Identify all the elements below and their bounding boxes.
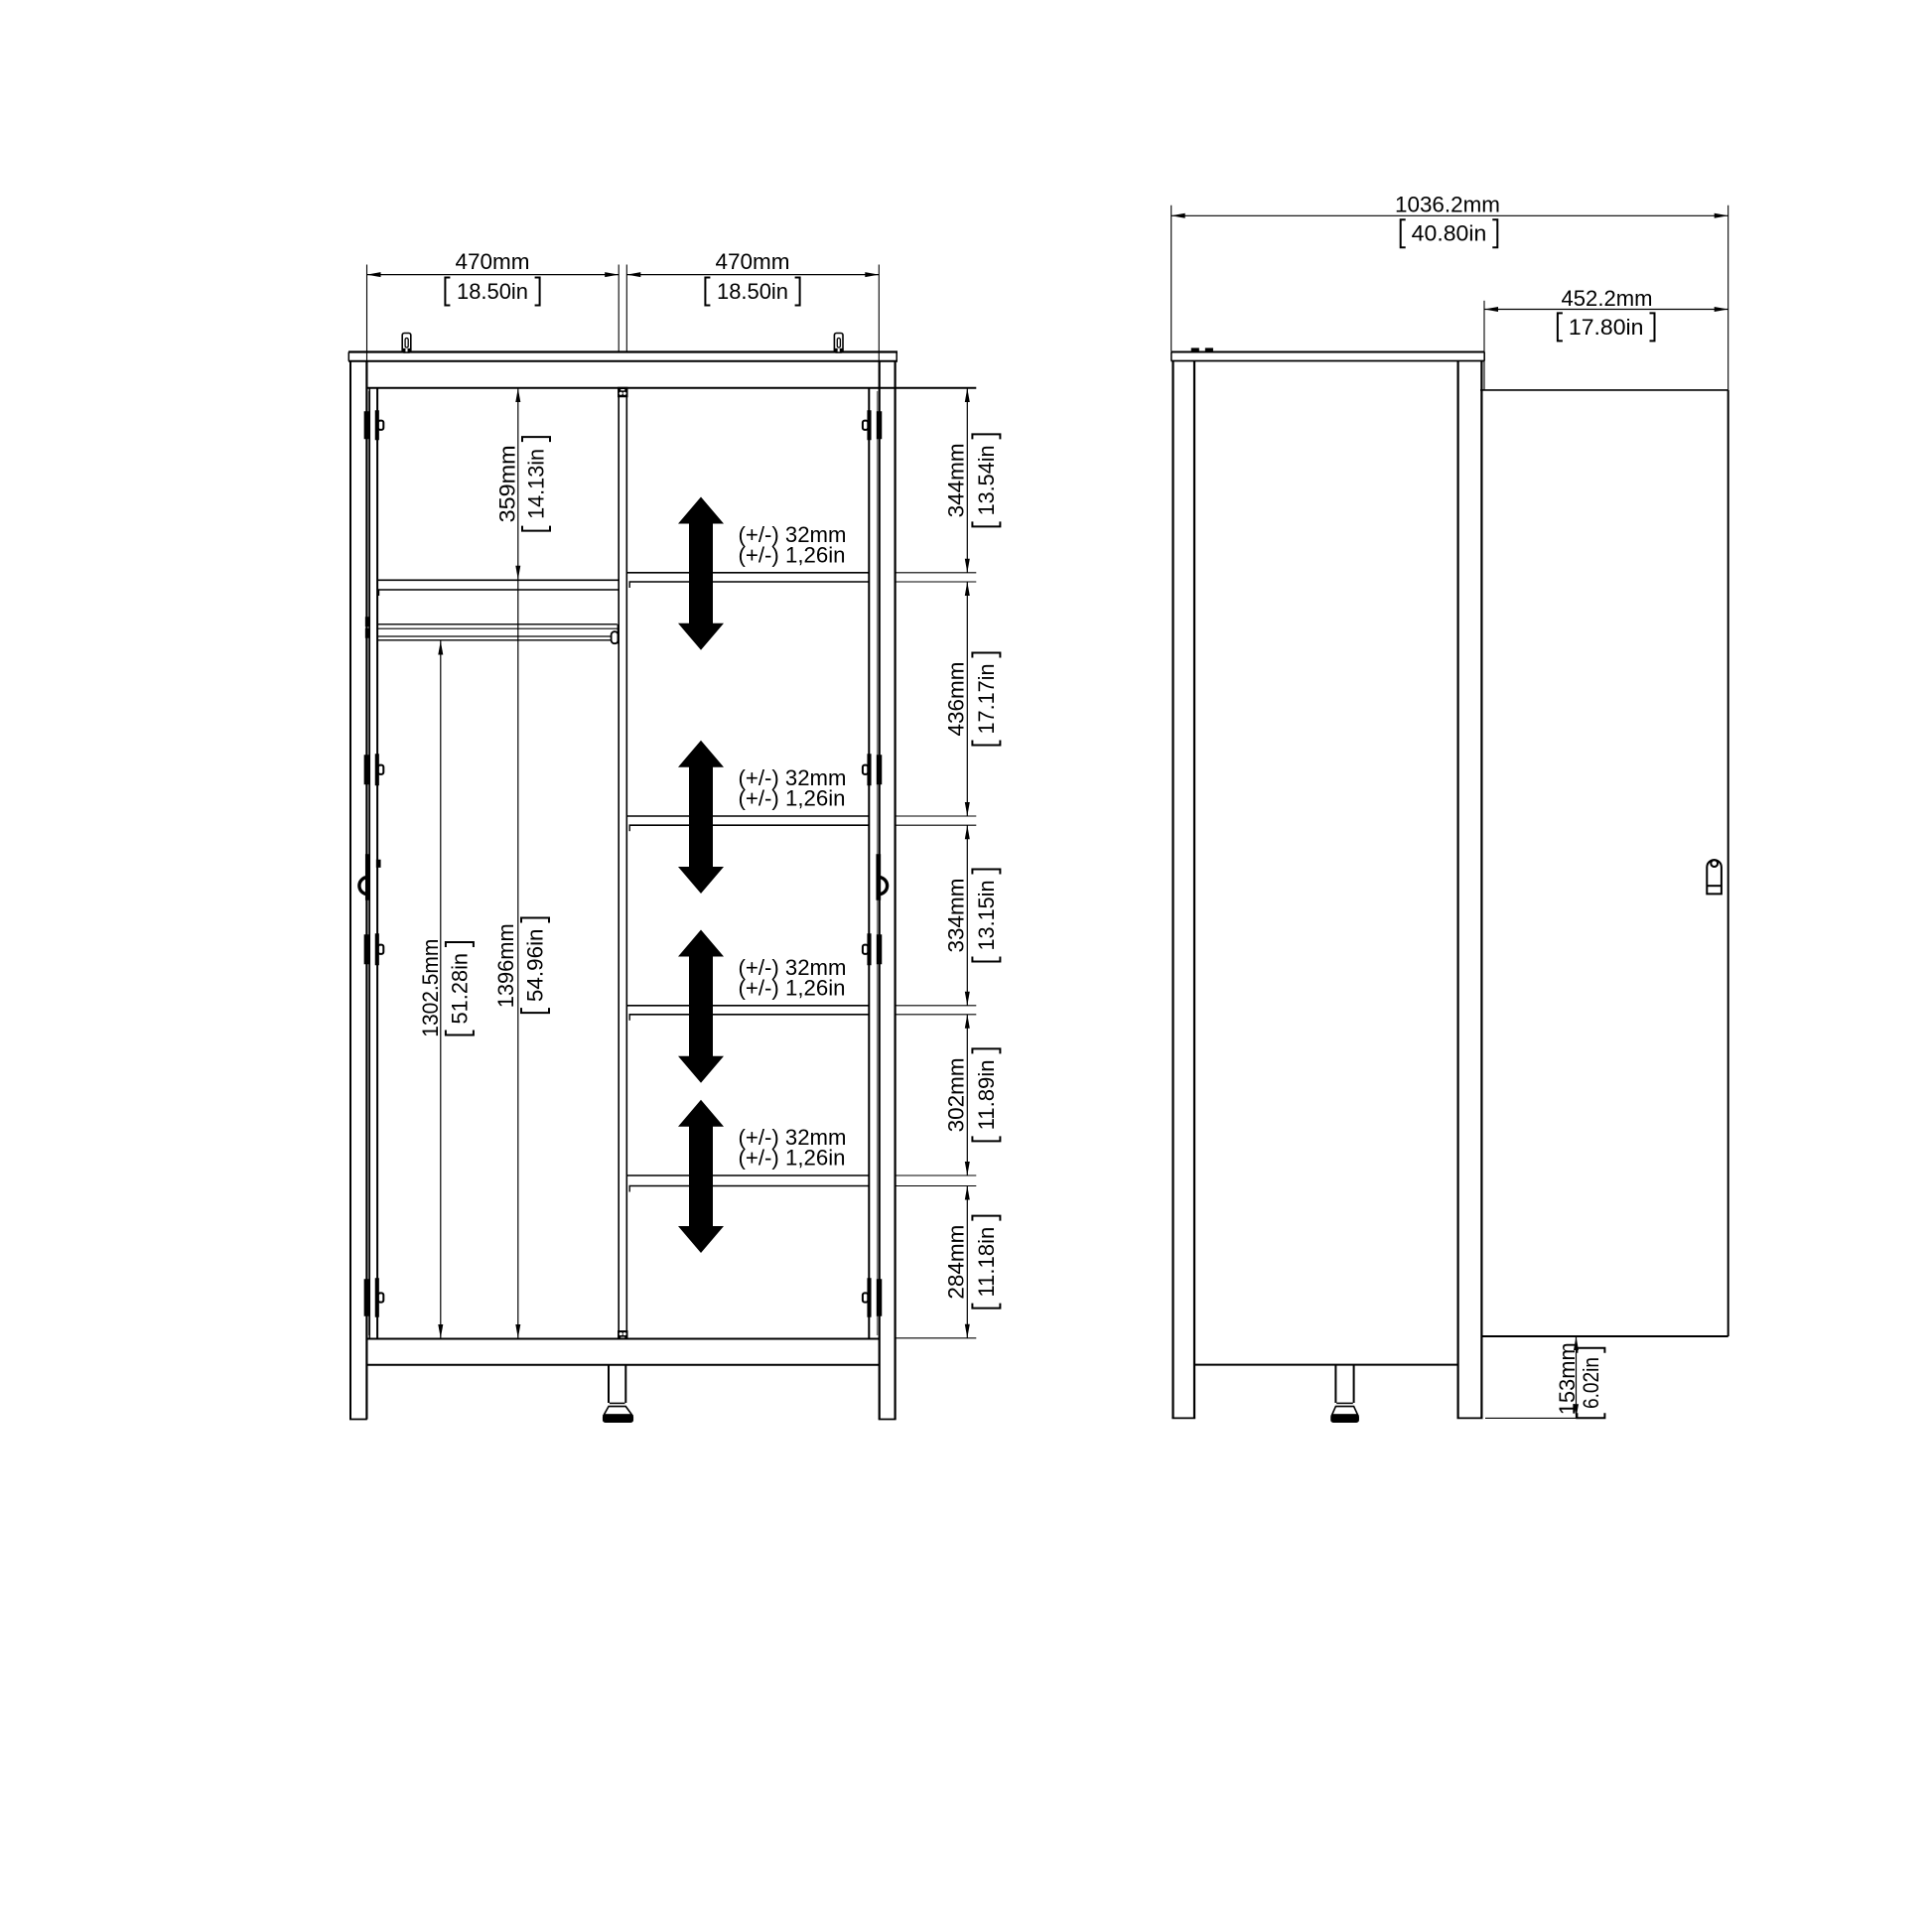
svg-text:13.54in: 13.54in — [974, 445, 999, 515]
svg-text:436mm: 436mm — [944, 662, 969, 737]
svg-text:11.18in: 11.18in — [974, 1227, 999, 1298]
svg-text:18.50in: 18.50in — [457, 279, 528, 304]
svg-text:284mm: 284mm — [944, 1225, 969, 1300]
svg-text:1036.2mm: 1036.2mm — [1395, 193, 1500, 217]
svg-text:17.17in: 17.17in — [974, 664, 999, 735]
svg-text:6.02in: 6.02in — [1579, 1357, 1603, 1409]
svg-text:51.28in: 51.28in — [447, 953, 472, 1024]
svg-text:344mm: 344mm — [944, 443, 969, 517]
svg-text:14.13in: 14.13in — [524, 449, 549, 519]
svg-text:11.89in: 11.89in — [974, 1059, 999, 1130]
svg-text:(+/-) 1,26in: (+/-) 1,26in — [739, 975, 846, 1000]
svg-text:452.2mm: 452.2mm — [1562, 286, 1653, 311]
svg-text:17.80in: 17.80in — [1569, 315, 1644, 340]
svg-text:470mm: 470mm — [456, 249, 530, 274]
svg-text:18.50in: 18.50in — [717, 279, 788, 304]
svg-text:334mm: 334mm — [944, 879, 969, 953]
svg-text:1396mm: 1396mm — [493, 923, 518, 1008]
svg-text:1302.5mm: 1302.5mm — [418, 939, 443, 1037]
svg-text:153mm: 153mm — [1555, 1342, 1580, 1415]
svg-text:13.15in: 13.15in — [974, 881, 999, 951]
svg-text:40.80in: 40.80in — [1412, 221, 1487, 246]
svg-text:359mm: 359mm — [495, 445, 520, 522]
svg-text:(+/-) 1,26in: (+/-) 1,26in — [739, 786, 846, 811]
svg-text:470mm: 470mm — [716, 249, 790, 274]
svg-text:(+/-) 1,26in: (+/-) 1,26in — [739, 542, 846, 567]
svg-text:(+/-) 1,26in: (+/-) 1,26in — [739, 1146, 846, 1171]
svg-text:302mm: 302mm — [944, 1057, 969, 1132]
svg-text:54.96in: 54.96in — [523, 928, 548, 1002]
